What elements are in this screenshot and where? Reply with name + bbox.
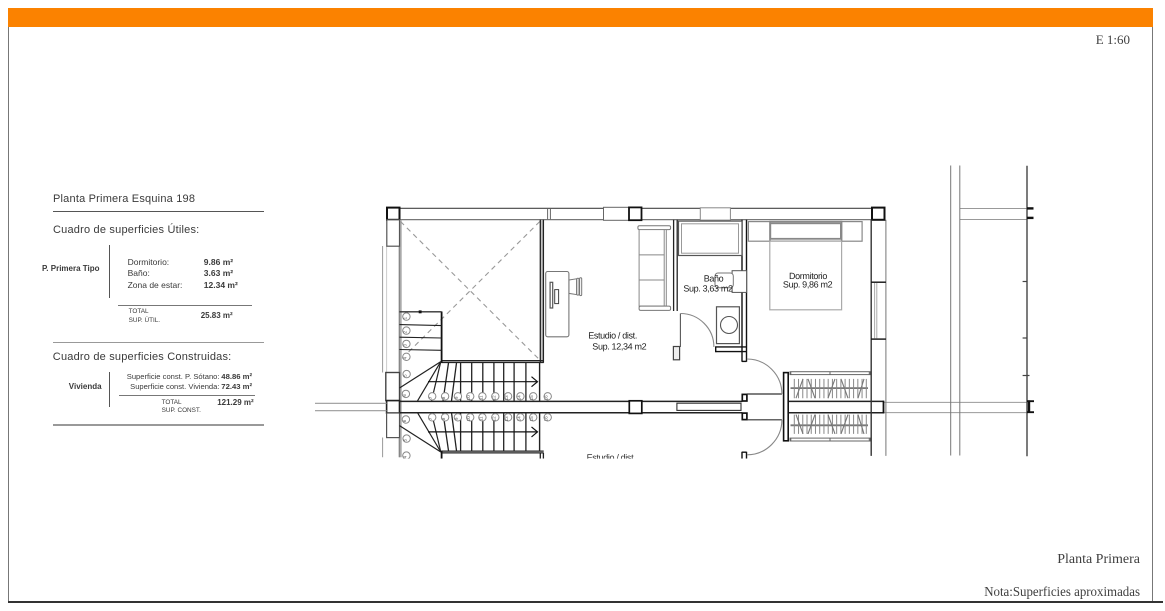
- svg-text:15: 15: [529, 416, 534, 422]
- svg-text:15: 15: [529, 395, 534, 401]
- svg-text:Sup. 9,86 m2: Sup. 9,86 m2: [783, 280, 833, 290]
- svg-text:13: 13: [504, 395, 509, 401]
- svg-text:Sup. 3,63 m2: Sup. 3,63 m2: [683, 284, 733, 294]
- svg-text:13: 13: [504, 416, 509, 422]
- svg-text:16: 16: [544, 395, 549, 401]
- svg-text:Estudio / dist.: Estudio / dist.: [588, 330, 637, 340]
- svg-text:Baño: Baño: [704, 273, 724, 283]
- svg-text:14: 14: [516, 416, 521, 422]
- svg-text:Estudio / dist.: Estudio / dist.: [587, 452, 636, 462]
- svg-text:16: 16: [544, 416, 549, 422]
- svg-text:12: 12: [491, 395, 496, 401]
- svg-text:11: 11: [478, 395, 483, 400]
- svg-text:14: 14: [516, 395, 521, 401]
- svg-text:10: 10: [466, 395, 471, 401]
- svg-text:11: 11: [478, 416, 483, 421]
- svg-text:10: 10: [466, 416, 471, 422]
- svg-text:Sup. 12,34 m2: Sup. 12,34 m2: [592, 342, 646, 352]
- svg-text:12: 12: [491, 416, 496, 422]
